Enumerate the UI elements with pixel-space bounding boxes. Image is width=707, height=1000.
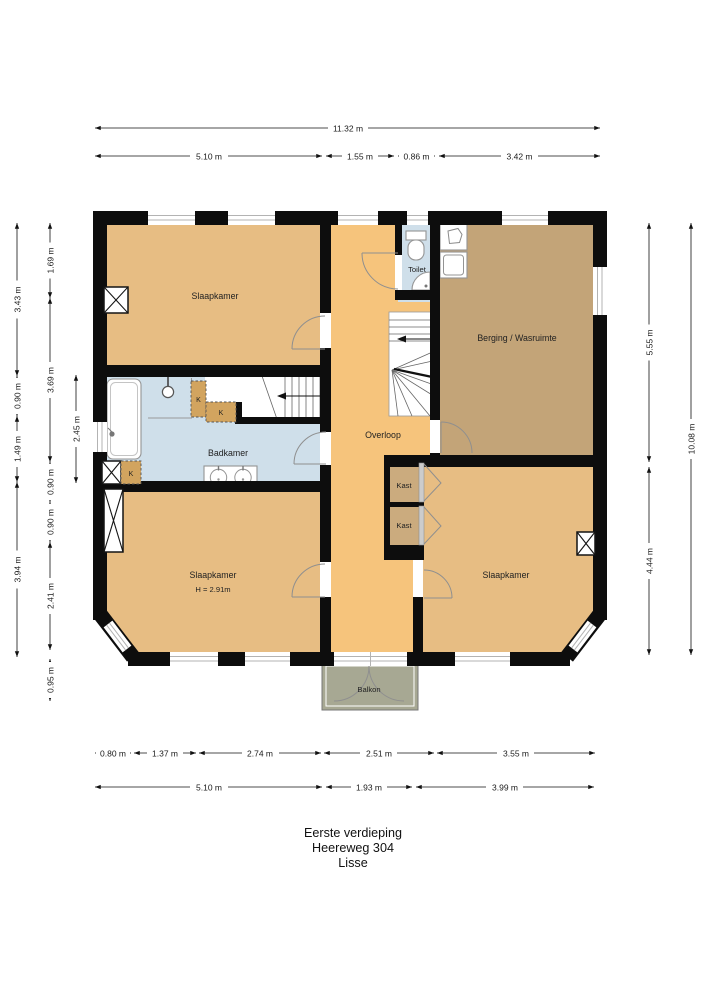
dimension: 0.95 m xyxy=(45,659,56,701)
window-top-5 xyxy=(502,211,548,225)
dim-label: 1.49 m xyxy=(13,436,23,462)
dim-label: 5.10 m xyxy=(196,783,222,793)
dim-label: 2.51 m xyxy=(366,749,392,759)
plan-title-street: Heereweg 304 xyxy=(312,841,394,855)
dim-label: 1.93 m xyxy=(356,783,382,793)
dim-label: 0.90 m xyxy=(46,469,56,495)
dim-label: 1.69 m xyxy=(46,248,56,274)
dim-label: 0.90 m xyxy=(13,383,23,409)
floorplan-canvas: K K K Slaapkamer Toilet Berging / Wasrui… xyxy=(0,0,707,1000)
dimension: 0.80 m xyxy=(95,748,131,759)
dimension: 3.69 m xyxy=(45,298,56,462)
room-label-overloop: Overloop xyxy=(365,430,401,440)
shaft-x-icon xyxy=(102,461,121,484)
k-closet-label: K xyxy=(129,471,134,478)
title-block: Eerste verdieping Heereweg 304 Lisse xyxy=(304,826,402,870)
room-height-label: H = 2.91m xyxy=(195,585,230,594)
dim-label: 0.86 m xyxy=(404,152,430,162)
dimension: 0.86 m xyxy=(398,151,435,162)
dim-label: 5.55 m xyxy=(645,330,655,356)
k-closet-label: K xyxy=(196,397,201,404)
bathtub xyxy=(107,379,141,459)
window-left-badkamer xyxy=(93,422,107,452)
dim-label: 3.42 m xyxy=(507,152,533,162)
dim-label: 2.74 m xyxy=(247,749,273,759)
window-top-3 xyxy=(338,211,378,225)
dimension: 3.55 m xyxy=(437,748,595,759)
window-right-berging xyxy=(593,267,607,315)
dimension: 3.94 m xyxy=(12,482,23,657)
dimensions-left: 3.43 m 0.90 m 1.49 m 3.94 m 1.69 m 3.69 … xyxy=(12,223,82,701)
shower-head-icon xyxy=(162,386,173,397)
dim-label: 2.41 m xyxy=(46,583,56,609)
dim-label: 5.10 m xyxy=(196,152,222,162)
dim-label: 4.44 m xyxy=(645,548,655,574)
dim-label: 1.37 m xyxy=(152,749,178,759)
plan-title-city: Lisse xyxy=(338,856,367,870)
room-label-slaapkamer-topleft: Slaapkamer xyxy=(192,291,239,301)
window-bottom-3 xyxy=(455,652,510,666)
dimension: 3.43 m xyxy=(12,223,23,376)
dimension: 4.44 m xyxy=(644,467,655,655)
room-label-kast1: Kast xyxy=(396,481,412,490)
dimension: 1.69 m xyxy=(45,223,56,298)
window-top-4 xyxy=(407,211,428,225)
wall-bottom-left xyxy=(128,652,334,666)
floorplan-page: K K K Slaapkamer Toilet Berging / Wasrui… xyxy=(0,0,707,1000)
room-label-balkon: Balkon xyxy=(357,685,380,694)
dim-label: 0.80 m xyxy=(100,749,126,759)
dimension: 0.90 m xyxy=(12,376,23,416)
room-label-badkamer: Badkamer xyxy=(208,448,248,458)
dimension: 11.32 m xyxy=(95,123,600,134)
dimension: 5.10 m xyxy=(95,782,322,793)
dimension: 3.42 m xyxy=(439,151,600,162)
dimension: 5.10 m xyxy=(95,151,322,162)
dimension: 0.90 m xyxy=(45,502,56,542)
dimension: 1.55 m xyxy=(326,151,394,162)
window-bottom-2 xyxy=(245,652,290,666)
room-label-berging: Berging / Wasruimte xyxy=(477,333,556,343)
shaft-x-icon xyxy=(104,489,123,552)
window-bottom-1 xyxy=(170,652,218,666)
room-label-kast2: Kast xyxy=(396,521,412,530)
shaft-x-icon xyxy=(104,287,128,313)
dimensions-right: 5.55 m 4.44 m 10.08 m xyxy=(644,223,697,655)
dim-label: 10.08 m xyxy=(687,424,697,455)
dim-label: 3.55 m xyxy=(503,749,529,759)
dim-label: 11.32 m xyxy=(333,124,363,134)
dimension: 2.41 m xyxy=(45,542,56,650)
room-label-toilet: Toilet xyxy=(408,265,427,274)
dim-label: 0.90 m xyxy=(46,509,56,535)
dimension: 2.74 m xyxy=(199,748,321,759)
dimension: 3.99 m xyxy=(416,782,594,793)
dimensions-bottom: 0.80 m 1.37 m 2.74 m 2.51 m 3.55 m 5.10 … xyxy=(95,748,595,793)
dimension: 1.49 m xyxy=(12,416,23,482)
shaft-x-icon xyxy=(577,532,595,555)
wall-left xyxy=(93,211,107,620)
dim-label: 3.94 m xyxy=(13,557,23,583)
dimensions-top: 11.32 m 5.10 m 1.55 m 0.86 m 3.42 m xyxy=(95,123,600,162)
room-label-slaapkamer-bottomleft: Slaapkamer xyxy=(190,570,237,580)
window-top-1 xyxy=(148,211,195,225)
dimension: 5.55 m xyxy=(644,223,655,462)
dimension: 2.45 m xyxy=(71,375,82,483)
dimension: 0.90 m xyxy=(45,462,56,502)
toilet-fixture xyxy=(406,231,426,260)
dim-label: 2.45 m xyxy=(72,416,82,442)
dimension: 2.51 m xyxy=(324,748,434,759)
dimension: 1.37 m xyxy=(134,748,196,759)
dim-label: 0.95 m xyxy=(46,667,56,693)
k-closet-label: K xyxy=(219,410,224,417)
dim-label: 1.55 m xyxy=(347,152,373,162)
dimension: 10.08 m xyxy=(686,223,697,655)
window-top-2 xyxy=(228,211,275,225)
dim-label: 3.69 m xyxy=(46,367,56,393)
slaapkamer-bottomright-floor xyxy=(418,461,600,659)
room-label-slaapkamer-bottomright: Slaapkamer xyxy=(483,570,530,580)
plan-title-floor: Eerste verdieping xyxy=(304,826,402,840)
dim-label: 3.43 m xyxy=(13,287,23,313)
dimension: 1.93 m xyxy=(326,782,412,793)
dim-label: 3.99 m xyxy=(492,783,518,793)
